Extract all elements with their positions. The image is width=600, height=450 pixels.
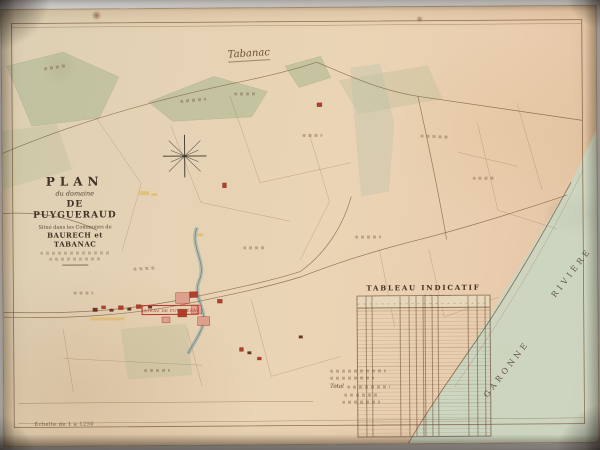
cartouche-rule	[62, 265, 88, 266]
illegible-handwriting	[330, 376, 374, 379]
title-cartouche: PLAN du domaine DE PUYGUERAUD Situé dans…	[25, 174, 126, 266]
table-column-line	[484, 296, 485, 436]
table-column-line	[399, 296, 400, 436]
table-column-line	[415, 296, 416, 436]
village-buildings	[91, 103, 323, 361]
map-title: PLAN	[25, 174, 125, 190]
illegible-handwriting	[342, 400, 380, 403]
estate-name: DE PUYGUERAUD	[25, 199, 125, 222]
scale-note: Échelle de 1 à 1250	[34, 421, 94, 427]
illegible-handwriting	[234, 92, 256, 95]
illegible-handwriting	[330, 369, 386, 372]
chateau-label-box: CHATEAU DE PUYGUERAUD	[142, 305, 199, 315]
stream	[187, 228, 204, 354]
illegible-handwriting	[73, 291, 93, 294]
communes-names: BAURECH et TABANAC	[25, 231, 125, 249]
photo-of-antique-map: PLAN du domaine DE PUYGUERAUD Situé dans…	[0, 0, 600, 450]
table-column-line	[408, 296, 409, 436]
illegible-handwriting	[302, 134, 322, 137]
illegible-handwriting	[344, 393, 378, 396]
illegible-handwriting	[144, 369, 170, 372]
table-column-line	[467, 296, 468, 436]
table-column-line	[431, 296, 432, 436]
compass-rose-icon	[163, 135, 207, 178]
table-column-line	[476, 296, 477, 436]
place-label-tabanac: Tabanac	[227, 47, 270, 62]
illegible-handwriting	[243, 246, 265, 249]
map-subtitle-script: du domaine	[25, 189, 125, 198]
map-sheet: PLAN du domaine DE PUYGUERAUD Situé dans…	[0, 5, 599, 447]
table-column-line	[437, 296, 438, 436]
illegible-total-value	[347, 385, 390, 388]
total-row: Total	[330, 383, 390, 389]
total-label: Total	[330, 384, 344, 390]
illegible-handwriting	[49, 258, 101, 261]
contenance-totals: Total	[330, 365, 390, 415]
illegible-handwriting	[355, 235, 381, 238]
illegible-handwriting	[473, 177, 497, 180]
table-title: TABLEAU INDICATIF	[353, 283, 493, 293]
table-column-line	[424, 296, 425, 436]
illegible-handwriting	[40, 252, 110, 255]
